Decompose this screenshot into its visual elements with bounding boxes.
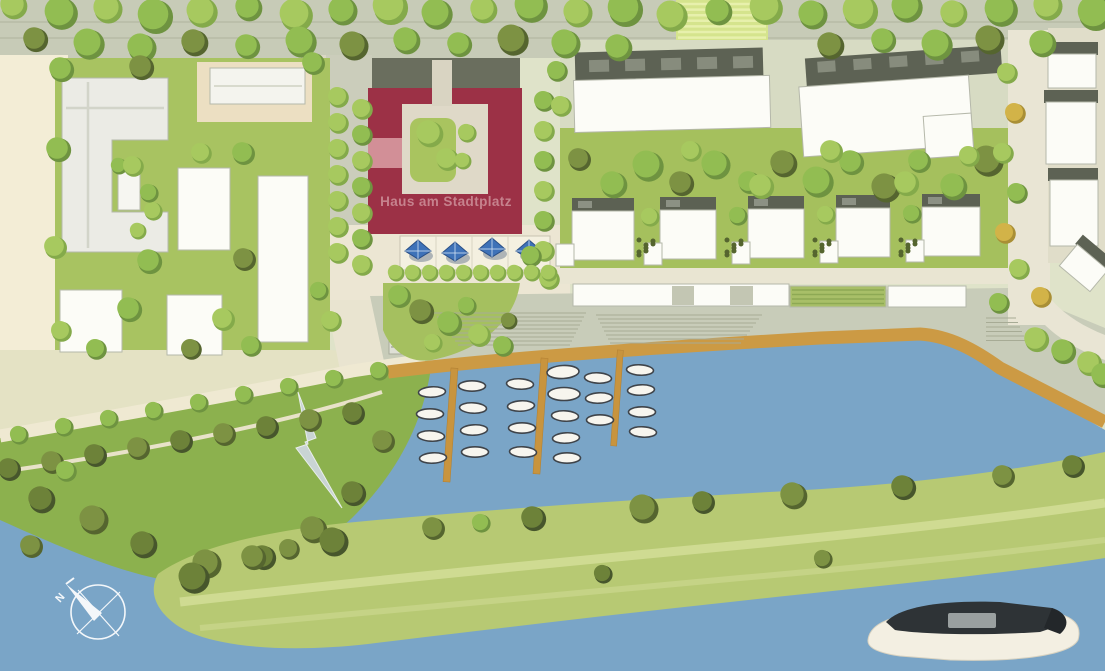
east-lane (560, 268, 1010, 284)
tree (129, 55, 151, 77)
tree (594, 565, 610, 581)
tree (641, 208, 657, 224)
building (572, 211, 634, 260)
site-plan: N Haus am Stadtplatz (0, 0, 1105, 671)
roof-detail (754, 199, 768, 206)
tree (388, 265, 402, 279)
skylight (589, 60, 609, 73)
tree (633, 151, 660, 178)
tree (127, 437, 147, 457)
tree (352, 203, 370, 221)
shrub (637, 238, 642, 243)
featured-building-label: Haus am Stadtplatz (380, 194, 512, 209)
shrub (827, 239, 832, 244)
boat (459, 381, 486, 391)
tree (989, 293, 1007, 311)
tree (179, 563, 206, 590)
tree (1031, 287, 1049, 305)
tree (524, 265, 538, 279)
tree (46, 137, 68, 159)
tree (84, 444, 104, 464)
tree (729, 207, 745, 223)
tree (212, 308, 232, 328)
tree (328, 165, 346, 183)
tree (498, 25, 525, 52)
building (573, 75, 770, 132)
tree (279, 539, 297, 557)
shrub (725, 238, 730, 243)
dark-roof (1048, 168, 1098, 181)
tree (55, 418, 71, 434)
tree (903, 205, 919, 221)
skylight (853, 58, 872, 70)
tree (780, 482, 803, 505)
tree (975, 25, 1000, 50)
tree (473, 265, 487, 279)
tree (995, 223, 1013, 241)
tree (319, 527, 344, 552)
tree (798, 0, 823, 25)
tree (568, 148, 588, 168)
shrub (899, 238, 904, 243)
tree (23, 27, 45, 49)
tree (455, 153, 469, 167)
tree (439, 265, 453, 279)
tree (310, 282, 326, 298)
tree (191, 143, 209, 161)
skylight (961, 50, 980, 62)
tree (940, 0, 963, 23)
boat (548, 388, 580, 401)
tree (256, 416, 276, 436)
tree (501, 313, 515, 327)
building (1048, 54, 1096, 88)
shrub (725, 250, 730, 255)
shrub (820, 243, 825, 248)
tree (190, 394, 206, 410)
tree (993, 143, 1011, 161)
tree (894, 171, 916, 193)
tree (302, 52, 322, 72)
tree (100, 410, 116, 426)
tree (534, 181, 552, 199)
ship-cabin (948, 613, 996, 628)
shrub (644, 243, 649, 248)
tree (521, 506, 543, 528)
building (836, 208, 890, 257)
tree (144, 202, 160, 218)
skylight (697, 57, 717, 70)
tree (817, 206, 833, 222)
tree (86, 339, 104, 357)
tree (339, 31, 364, 56)
tree (352, 177, 370, 195)
tree (10, 426, 26, 442)
dark-roof (1044, 90, 1098, 103)
tree (44, 236, 64, 256)
tree (325, 370, 341, 386)
skylight (817, 60, 836, 72)
tree (352, 229, 370, 247)
tree (241, 336, 259, 354)
tree (472, 514, 488, 530)
tree (352, 99, 370, 117)
tree (28, 486, 51, 509)
tree (551, 29, 576, 54)
skylight (625, 59, 645, 72)
tree (1062, 455, 1082, 475)
shrub (899, 250, 904, 255)
passage (432, 60, 452, 106)
tree (352, 125, 370, 143)
tree (409, 299, 431, 321)
tree (959, 146, 977, 164)
tree (140, 184, 156, 200)
building-wing (556, 244, 574, 266)
building-wing (118, 172, 140, 210)
tree (493, 336, 511, 354)
tree (56, 461, 74, 479)
tree (814, 550, 830, 566)
tree (328, 217, 346, 235)
tree (352, 151, 370, 169)
tree (233, 248, 253, 268)
skylight (733, 56, 753, 69)
tree (922, 30, 949, 57)
skylight (661, 58, 681, 71)
tree (138, 0, 169, 29)
tree (456, 265, 470, 279)
tree (1005, 103, 1023, 121)
building-annex (368, 138, 402, 168)
tree (51, 321, 69, 339)
tree (280, 378, 296, 394)
shrub (651, 239, 656, 244)
tree (170, 430, 190, 450)
tree (20, 535, 40, 555)
tree (341, 481, 363, 503)
tree (241, 545, 263, 567)
tree (458, 297, 474, 313)
shrub (813, 250, 818, 255)
boat (417, 409, 444, 419)
tree (541, 265, 555, 279)
tree (458, 124, 474, 140)
building-section (672, 286, 694, 305)
tree (770, 150, 793, 173)
tree (328, 87, 346, 105)
boat (509, 423, 536, 433)
north-slab-1 (573, 47, 771, 132)
tree (1007, 183, 1025, 201)
tree (235, 34, 257, 56)
tree (328, 139, 346, 157)
tree (437, 311, 459, 333)
tree (629, 494, 654, 519)
tree (940, 173, 963, 196)
west-district (55, 58, 330, 355)
shrub (637, 250, 642, 255)
tree (405, 265, 419, 279)
shrub (732, 243, 737, 248)
roof-detail (666, 200, 680, 207)
tree (908, 150, 928, 170)
roof-detail (928, 197, 942, 204)
tree (803, 167, 830, 194)
tree (235, 386, 251, 402)
tree (393, 27, 416, 50)
roof-detail (578, 201, 592, 208)
shrub (813, 238, 818, 243)
tree (1051, 339, 1073, 361)
tree (370, 362, 386, 378)
tree (328, 191, 346, 209)
boat (587, 415, 614, 425)
tree (321, 311, 339, 329)
tree (130, 531, 153, 554)
tree (416, 120, 439, 143)
roof-detail (842, 198, 856, 205)
tree (701, 150, 726, 175)
tree (681, 141, 699, 159)
tree (605, 34, 628, 57)
tree (997, 63, 1015, 81)
tree (547, 61, 565, 79)
boat (629, 407, 656, 417)
building-section (730, 286, 753, 305)
tree (551, 96, 569, 114)
tree (352, 255, 370, 273)
tree (534, 121, 552, 139)
tree (328, 113, 346, 131)
tree (299, 409, 319, 429)
tree (213, 423, 233, 443)
building (748, 209, 804, 258)
tree (468, 324, 488, 344)
building (258, 176, 308, 342)
tree (534, 91, 552, 109)
tree (181, 339, 199, 357)
tree (328, 243, 346, 261)
tree (422, 517, 442, 537)
tree (388, 285, 408, 305)
tree (286, 27, 313, 54)
boat (554, 453, 581, 463)
shrub (906, 243, 911, 248)
tree (490, 265, 504, 279)
tree (669, 171, 691, 193)
building (660, 210, 716, 259)
building (922, 207, 980, 256)
tree (436, 148, 456, 168)
tree (232, 142, 252, 162)
tree (49, 57, 71, 79)
haus-am-stadtplatz: Haus am Stadtplatz (368, 58, 522, 234)
tree (521, 246, 539, 264)
tree (817, 32, 840, 55)
tree (424, 334, 440, 350)
tree (820, 140, 840, 160)
tree (145, 402, 161, 418)
tree (749, 174, 771, 196)
tree (600, 171, 623, 194)
tree (871, 173, 896, 198)
tree (692, 491, 712, 511)
skylight (889, 55, 908, 67)
tree (534, 151, 552, 169)
tree (891, 475, 913, 497)
tree (507, 265, 521, 279)
building (888, 286, 966, 307)
building (1046, 102, 1096, 164)
tree (992, 465, 1012, 485)
tree (137, 249, 159, 271)
tree (534, 211, 552, 229)
tree (422, 265, 436, 279)
tree (1029, 30, 1052, 53)
tree (130, 223, 144, 237)
tree (181, 29, 204, 52)
tree (123, 156, 141, 174)
building (178, 168, 230, 250)
shrub (913, 239, 918, 244)
boat (462, 447, 489, 457)
tree (74, 29, 101, 56)
tree (127, 33, 152, 58)
site-plan-graphic: N Haus am Stadtplatz (0, 0, 1105, 671)
tree (342, 402, 362, 422)
tree (117, 297, 139, 319)
shrub (739, 239, 744, 244)
tree (1024, 327, 1046, 349)
tree (372, 430, 392, 450)
tree (1009, 259, 1027, 277)
tree (657, 1, 684, 28)
tree (447, 32, 469, 54)
tree (871, 28, 893, 50)
building (1050, 180, 1098, 246)
tree (79, 505, 104, 530)
